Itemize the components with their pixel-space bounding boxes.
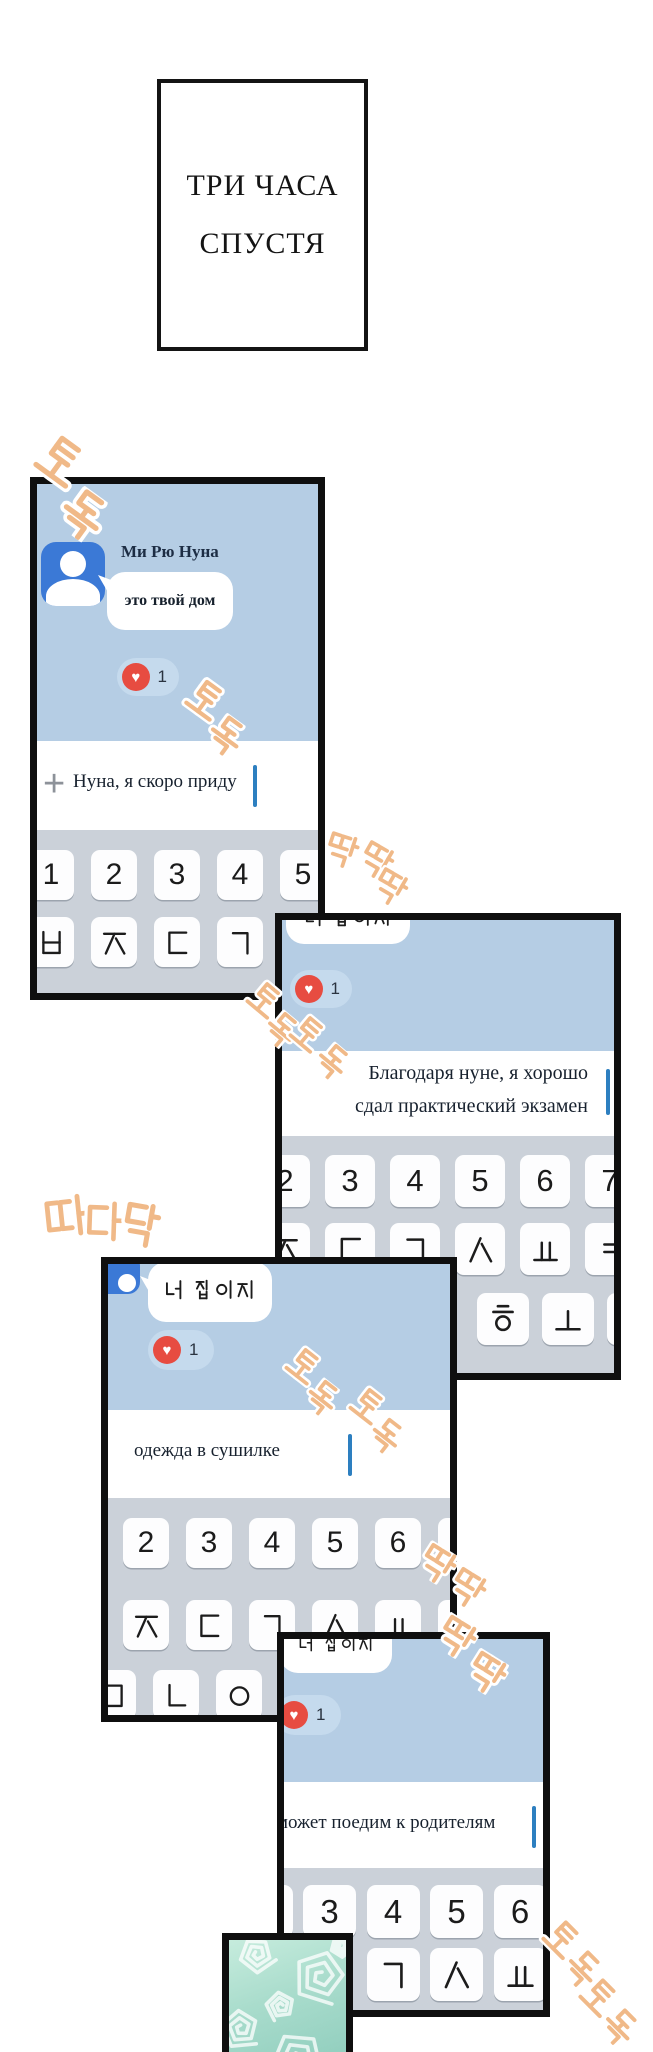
key-ㅈ[interactable] <box>91 917 137 967</box>
add-attachment-icon[interactable]: + <box>43 765 65 803</box>
text-cursor <box>253 765 257 807</box>
key-ㅛ[interactable] <box>494 1948 547 2001</box>
key-ㅇ[interactable] <box>216 1670 262 1720</box>
reaction-pill[interactable]: ♥ 1 <box>117 658 179 696</box>
heart-icon: ♥ <box>153 1336 181 1364</box>
message-bubble: это твой дом <box>107 572 233 630</box>
key-7[interactable]: 7 <box>585 1155 621 1207</box>
sfx-8-char <box>571 1971 625 2025</box>
key-5[interactable]: 5 <box>312 1518 358 1568</box>
message-bubble-text: это твой дом <box>125 592 216 610</box>
key-blank[interactable] <box>607 1293 621 1345</box>
key-ㄴ[interactable] <box>153 1670 199 1720</box>
key-ㅕ[interactable] <box>585 1223 621 1275</box>
message-bubble-text <box>304 913 393 932</box>
contact-avatar[interactable] <box>41 542 105 606</box>
key-ㅁ[interactable] <box>101 1670 136 1720</box>
key-3[interactable]: 3 <box>154 850 200 900</box>
sfx-8-char <box>554 1943 608 1997</box>
comic-page: ТРИ ЧАСА СПУСТЯ Ми Рю Нуна это твой дом … <box>0 0 653 2052</box>
heart-icon: ♥ <box>122 663 150 691</box>
key-ㅅ[interactable] <box>455 1223 505 1275</box>
input-line-1: Благодаря нуне, я хорошо <box>355 1057 588 1090</box>
message-bubble-text <box>298 1635 375 1657</box>
message-input[interactable]: может поедим к родителям <box>284 1782 543 1868</box>
input-text: Благодаря нуне, я хорошо сдал практическ… <box>355 1057 588 1123</box>
key-4[interactable]: 4 <box>249 1518 295 1568</box>
sfx-3-char <box>351 837 400 888</box>
caption-box: ТРИ ЧАСА СПУСТЯ <box>157 79 368 351</box>
key-6[interactable]: 6 <box>520 1155 570 1207</box>
reaction-pill[interactable]: ♥ 1 <box>148 1330 214 1370</box>
heart-icon: ♥ <box>280 1701 308 1729</box>
caption-line-2: СПУСТЯ <box>199 229 325 259</box>
key-5[interactable]: 5 <box>280 850 325 900</box>
key-6[interactable]: 6 <box>375 1518 421 1568</box>
key-3[interactable]: 3 <box>325 1155 375 1207</box>
spiral-pattern <box>229 1940 346 2052</box>
key-1[interactable]: 1 <box>30 850 74 900</box>
sfx-5-char <box>42 1192 91 1245</box>
reaction-pill[interactable]: ♥ 1 <box>290 970 352 1008</box>
key-3[interactable]: 3 <box>303 1885 356 1938</box>
text-cursor <box>348 1434 352 1476</box>
message-bubble-text <box>164 1279 257 1305</box>
contact-avatar[interactable] <box>101 1257 140 1294</box>
reaction-pill[interactable]: ♥ 1 <box>277 1695 341 1735</box>
input-line-2: сдал практический экзамен <box>355 1090 588 1123</box>
key-4[interactable]: 4 <box>367 1885 420 1938</box>
reaction-count: 1 <box>158 667 167 687</box>
add-attachment-icon[interactable]: + <box>275 1073 282 1111</box>
key-5[interactable]: 5 <box>455 1155 505 1207</box>
text-cursor <box>606 1069 610 1115</box>
key-5[interactable]: 5 <box>430 1885 483 1938</box>
message-bubble <box>280 1632 392 1673</box>
key-ㄷ[interactable] <box>186 1600 232 1650</box>
reaction-count: 1 <box>189 1340 198 1360</box>
key-6[interactable]: 6 <box>494 1885 547 1938</box>
key-ㅎ[interactable] <box>477 1293 529 1345</box>
input-text: может поедим к родителям <box>277 1812 495 1834</box>
key-2[interactable]: 2 <box>123 1518 169 1568</box>
key-ㄱ[interactable] <box>217 917 263 967</box>
message-bubble <box>148 1262 272 1322</box>
sfx-8-char <box>591 2001 645 2052</box>
input-text: одежда в сушилке <box>134 1440 280 1462</box>
decor-panel <box>222 1933 353 2052</box>
message-bubble <box>286 913 410 944</box>
heart-icon: ♥ <box>295 975 323 1003</box>
text-cursor <box>532 1806 536 1848</box>
input-text: Нуна, я скоро приду <box>73 771 237 793</box>
key-blank[interactable] <box>438 1518 457 1568</box>
key-ㅛ[interactable] <box>520 1223 570 1275</box>
message-input[interactable]: + Нуна, я скоро приду <box>37 741 318 830</box>
sfx-3-char <box>319 829 363 877</box>
key-ㅂ[interactable] <box>30 917 74 967</box>
sfx-5-char <box>114 1198 168 1256</box>
key-ㅗ[interactable] <box>542 1293 594 1345</box>
key-blank[interactable] <box>277 1885 293 1938</box>
reaction-count: 1 <box>331 979 340 999</box>
key-3[interactable]: 3 <box>186 1518 232 1568</box>
key-ㅈ[interactable] <box>123 1600 169 1650</box>
sfx-5-char <box>81 1199 125 1247</box>
message-input[interactable]: + Благодаря нуне, я хорошо сдал практиче… <box>282 1051 614 1136</box>
reaction-count: 1 <box>316 1705 325 1725</box>
key-2[interactable]: 2 <box>91 850 137 900</box>
key-ㅅ[interactable] <box>430 1948 483 2001</box>
contact-name: Ми Рю Нуна <box>121 542 219 562</box>
key-2[interactable]: 2 <box>275 1155 310 1207</box>
key-4[interactable]: 4 <box>390 1155 440 1207</box>
key-ㄷ[interactable] <box>154 917 200 967</box>
caption-line-1: ТРИ ЧАСА <box>186 171 338 201</box>
message-input[interactable]: одежда в сушилке <box>108 1410 450 1498</box>
sfx-3-char <box>365 864 414 915</box>
key-ㄱ[interactable] <box>367 1948 420 2001</box>
key-4[interactable]: 4 <box>217 850 263 900</box>
